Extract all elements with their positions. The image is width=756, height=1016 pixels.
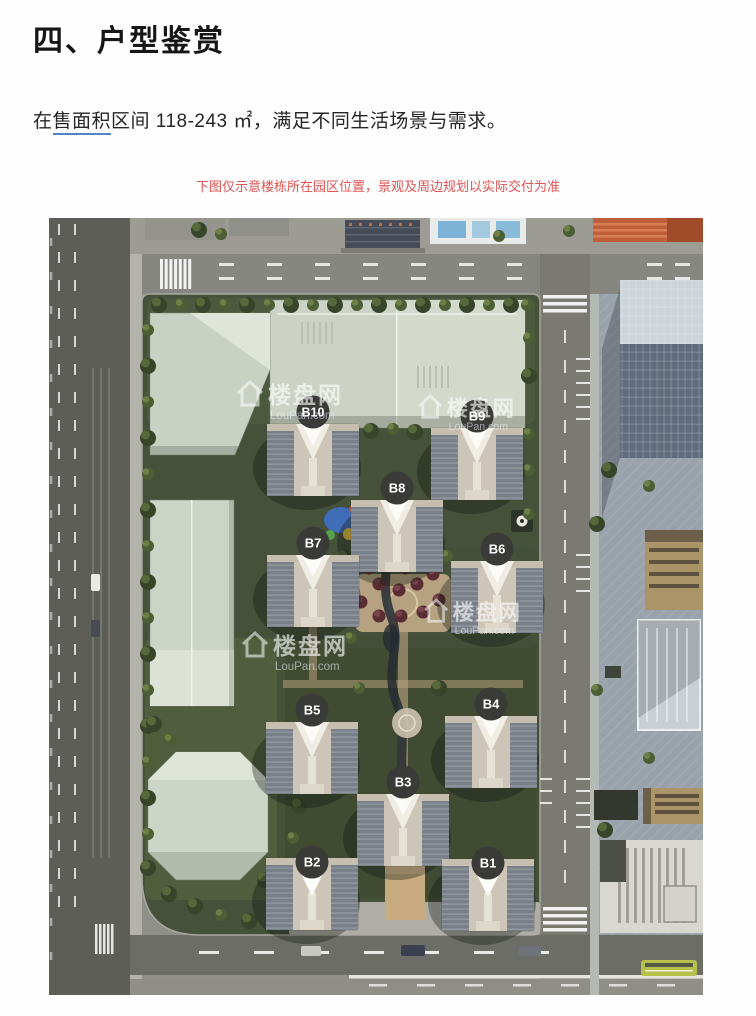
building-badge-label: B4 bbox=[483, 697, 500, 712]
disclaimer-note: 下图仅示意楼栋所在园区位置，景观及周边规划以实际交付为准 bbox=[0, 176, 756, 195]
residential-tower-b10 bbox=[253, 424, 361, 510]
building-badge-label: B2 bbox=[304, 855, 321, 870]
car bbox=[401, 945, 425, 956]
car bbox=[301, 946, 321, 956]
building-badge-label: B6 bbox=[489, 542, 506, 557]
residential-tower-b7 bbox=[253, 555, 361, 641]
article-page: 四、户型鉴赏 在售面积区间 118-243 ㎡，满足不同生活场景与需求。 下图仅… bbox=[0, 0, 756, 1016]
car bbox=[519, 946, 541, 956]
watermark-name: 楼盘网 bbox=[447, 395, 516, 420]
building-badge-label: B3 bbox=[395, 775, 412, 790]
residential-tower-b3 bbox=[343, 794, 451, 880]
watermark-domain: LouPan.com bbox=[455, 625, 515, 637]
left-road bbox=[49, 218, 130, 995]
building-badge-label: B1 bbox=[480, 856, 497, 871]
intro-paragraph: 在售面积区间 118-243 ㎡，满足不同生活场景与需求。 bbox=[33, 106, 506, 133]
top-road bbox=[49, 254, 703, 294]
building-badge-label: B5 bbox=[304, 703, 321, 718]
intro-prefix: 在 bbox=[33, 111, 53, 132]
building-badge-label: B7 bbox=[305, 536, 322, 551]
watermark-domain: LouPan.com bbox=[270, 410, 335, 422]
building-badge-label: B8 bbox=[389, 481, 406, 496]
site-plan-image[interactable]: B10 B9 B8 B7 B6 B5 B4 B3 B2 B1 楼盘网 LouPa… bbox=[49, 218, 703, 995]
section-heading: 四、户型鉴赏 bbox=[33, 16, 225, 60]
watermark-domain: LouPan.com bbox=[449, 421, 509, 433]
sale-area-link[interactable]: 售面积 bbox=[53, 111, 112, 135]
residential-tower-b4 bbox=[431, 716, 539, 802]
bus bbox=[641, 960, 697, 976]
watermark-domain: LouPan.com bbox=[275, 661, 340, 673]
watermark-name: 楼盘网 bbox=[268, 382, 343, 408]
residential-tower-b5 bbox=[252, 722, 360, 808]
watermark-name: 楼盘网 bbox=[453, 599, 522, 624]
intro-suffix: 区间 118-243 ㎡，满足不同生活场景与需求。 bbox=[111, 111, 506, 132]
watermark-name: 楼盘网 bbox=[273, 633, 348, 659]
